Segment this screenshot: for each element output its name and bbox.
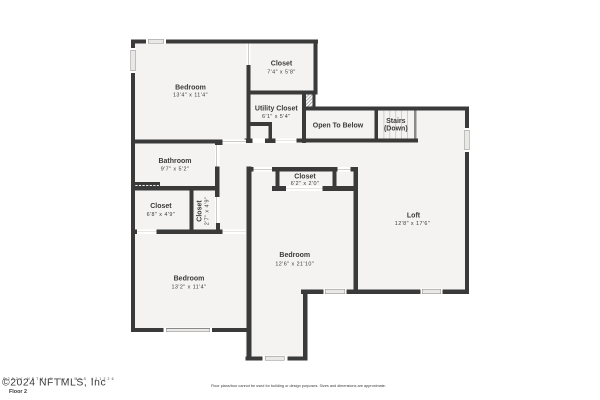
svg-text:12'6" x 21'10": 12'6" x 21'10" [275,261,314,267]
svg-text:Bedroom: Bedroom [279,252,310,259]
svg-text:2'7" x 4'9": 2'7" x 4'9" [204,197,210,226]
svg-text:Closet: Closet [150,203,172,210]
svg-text:9'7" x 5'2": 9'7" x 5'2" [161,167,190,173]
svg-text:7'4" x 5'8": 7'4" x 5'8" [267,70,296,76]
svg-text:6'8" x 4'9": 6'8" x 4'9" [147,212,176,218]
svg-text:6'2" x 2'0": 6'2" x 2'0" [291,181,320,187]
svg-text:13'4" x 11'4": 13'4" x 11'4" [173,93,208,99]
svg-text:Loft: Loft [407,212,421,219]
svg-text:Closet: Closet [196,200,203,222]
svg-text:Open To Below: Open To Below [313,122,364,129]
svg-text:©2024 NFTMLS, Inc MLS #21226: ©2024 NFTMLS, Inc MLS #21226 [3,377,116,381]
svg-text:Bedroom: Bedroom [175,85,206,92]
svg-text:Floor 2: Floor 2 [9,389,27,395]
svg-text:Bedroom: Bedroom [174,276,205,283]
svg-text:Floor plans/tour cannot be use: Floor plans/tour cannot be used for buil… [211,384,386,388]
svg-text:12'8" x 17'6": 12'8" x 17'6" [395,221,430,227]
svg-text:Utility Closet: Utility Closet [255,106,298,113]
svg-text:(Down): (Down) [384,125,408,132]
svg-text:Bathroom: Bathroom [158,158,191,165]
svg-text:6'1" x 5'4": 6'1" x 5'4" [262,114,291,120]
svg-text:13'2" x 11'4": 13'2" x 11'4" [171,285,206,291]
svg-text:Closet: Closet [271,61,293,68]
svg-text:Stairs: Stairs [386,118,406,125]
svg-text:Closet: Closet [294,173,316,180]
